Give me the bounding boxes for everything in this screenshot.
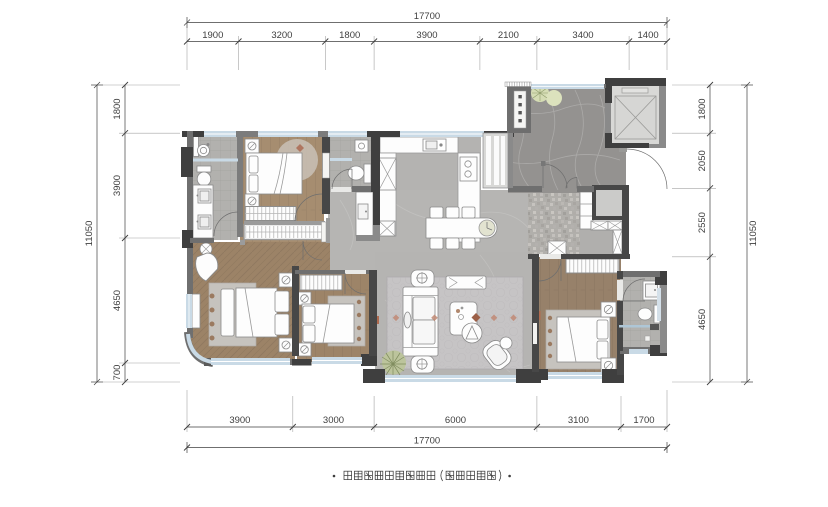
svg-text:3900: 3900 <box>416 30 437 41</box>
svg-text:4650: 4650 <box>697 309 708 330</box>
svg-text:1800: 1800 <box>697 98 708 119</box>
svg-text:4650: 4650 <box>112 290 123 311</box>
svg-text:6000: 6000 <box>445 415 466 426</box>
svg-text:2050: 2050 <box>697 150 708 171</box>
svg-text:3400: 3400 <box>572 30 593 41</box>
svg-text:3900: 3900 <box>229 415 250 426</box>
svg-text:11050: 11050 <box>84 221 95 247</box>
svg-text:3000: 3000 <box>323 415 344 426</box>
svg-text:17700: 17700 <box>414 11 440 22</box>
svg-text:3900: 3900 <box>112 175 123 196</box>
svg-text:11050: 11050 <box>748 221 759 247</box>
svg-text:1400: 1400 <box>638 30 659 41</box>
svg-text:1800: 1800 <box>339 30 360 41</box>
svg-text:3100: 3100 <box>568 415 589 426</box>
svg-text:1700: 1700 <box>633 415 654 426</box>
svg-text:17700: 17700 <box>414 436 440 447</box>
svg-text:2100: 2100 <box>498 30 519 41</box>
svg-text:1900: 1900 <box>202 30 223 41</box>
svg-text:1800: 1800 <box>112 98 123 119</box>
svg-text:2550: 2550 <box>697 212 708 233</box>
svg-text:3200: 3200 <box>271 30 292 41</box>
svg-text:700: 700 <box>112 365 123 381</box>
